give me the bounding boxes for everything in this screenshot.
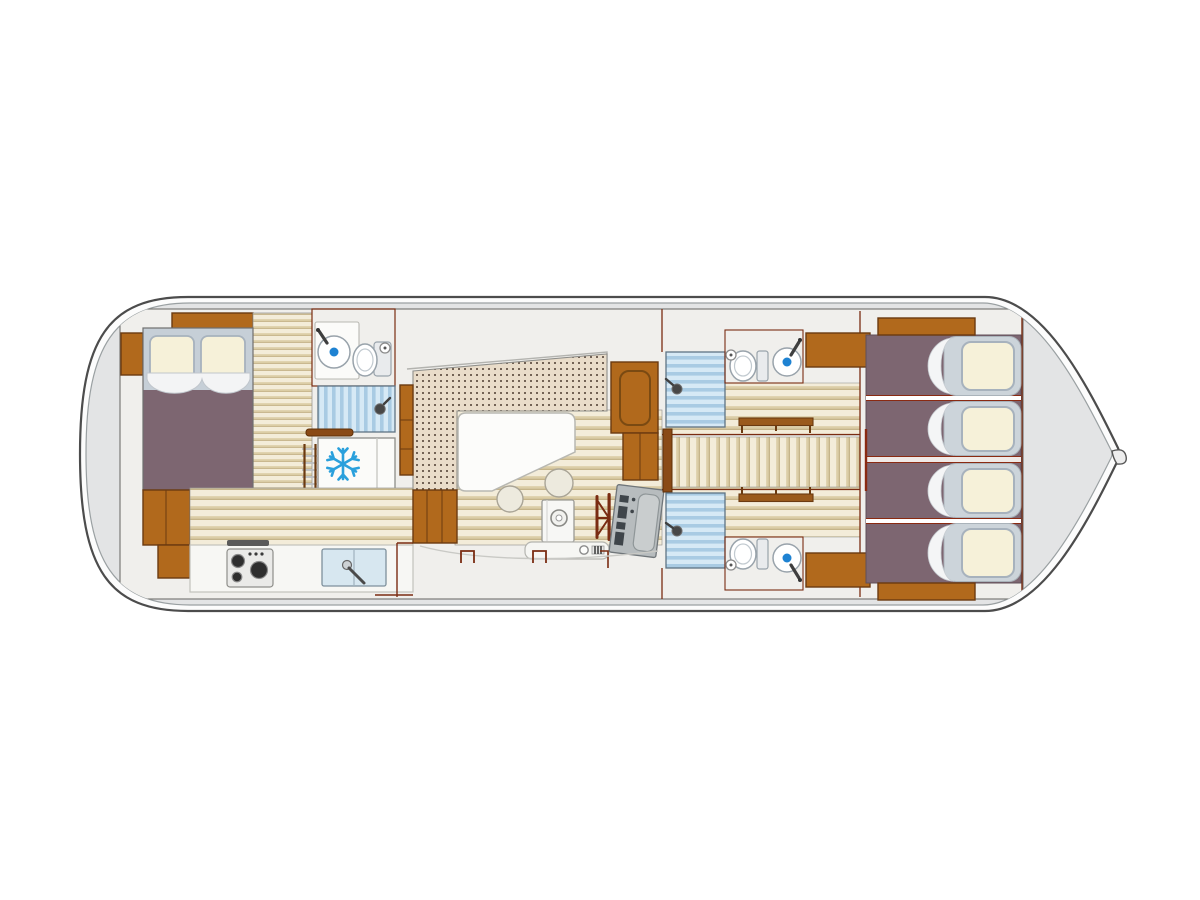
door-jamb <box>663 429 672 492</box>
corridor <box>672 437 860 487</box>
pillow <box>962 469 1014 513</box>
burner <box>251 562 268 579</box>
floor-galley <box>190 488 413 545</box>
stool <box>497 486 523 512</box>
pillow <box>962 529 1014 577</box>
refrigerator <box>318 438 395 490</box>
side-cabinet <box>400 385 413 475</box>
burner <box>232 572 242 582</box>
guest-cabins <box>662 309 870 599</box>
headboard-shelf-bottom <box>878 583 975 600</box>
under-bench-cabinet <box>413 490 457 543</box>
pillow <box>962 342 1014 390</box>
toilet <box>353 342 391 376</box>
cabinet-port <box>806 333 870 367</box>
towel-bar <box>227 540 269 546</box>
stove <box>227 549 273 587</box>
vent-grille <box>592 546 604 554</box>
grab-rail <box>306 429 353 436</box>
galley <box>190 488 413 597</box>
instrument-panel <box>609 484 664 557</box>
shower-forward <box>318 386 395 432</box>
helm-console <box>542 500 574 542</box>
drain-dot <box>330 348 339 357</box>
saloon <box>400 352 664 568</box>
deck-gauge <box>580 546 588 554</box>
burner <box>232 555 245 568</box>
double-bed <box>143 328 253 490</box>
aft-cabins <box>866 318 1021 600</box>
stool <box>545 469 573 497</box>
bed-blanket <box>143 386 253 490</box>
floor-plan-canvas <box>0 0 1200 900</box>
headboard-shelf-top <box>878 318 975 335</box>
shower-head-icon <box>375 404 385 414</box>
cabinet-starboard <box>806 553 870 587</box>
nightstand <box>121 333 143 375</box>
double-sink <box>322 549 386 586</box>
pillow <box>962 407 1014 451</box>
